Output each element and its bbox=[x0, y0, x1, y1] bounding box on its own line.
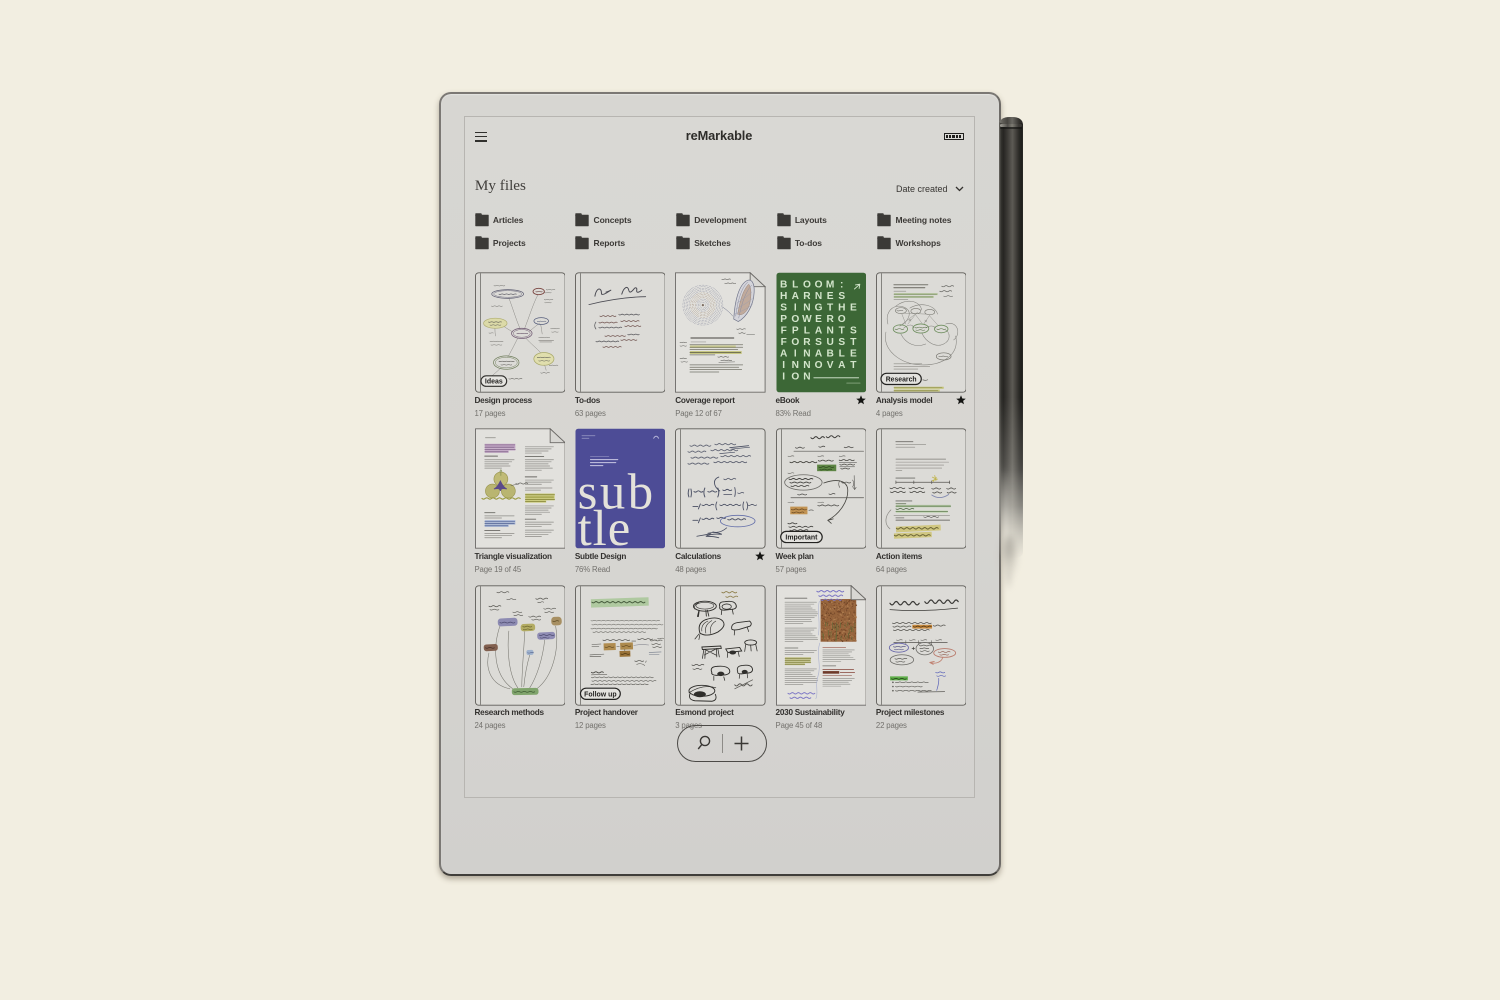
svg-text:Ideas: Ideas bbox=[484, 379, 502, 386]
svg-text:A: A bbox=[791, 291, 799, 302]
svg-text:E: E bbox=[815, 314, 822, 325]
svg-text:A: A bbox=[814, 326, 822, 337]
svg-text:A: A bbox=[780, 349, 788, 360]
svg-text:O: O bbox=[791, 314, 799, 325]
svg-text:tle: tle bbox=[577, 500, 631, 549]
svg-text:O: O bbox=[791, 337, 799, 348]
svg-text:Important: Important bbox=[785, 535, 818, 542]
svg-text:N: N bbox=[826, 326, 833, 337]
svg-text:L: L bbox=[803, 326, 809, 337]
svg-text:F: F bbox=[780, 326, 786, 337]
svg-text:A: A bbox=[838, 360, 846, 371]
svg-text:P: P bbox=[791, 326, 798, 337]
svg-text:S: S bbox=[815, 337, 822, 348]
svg-text:T: T bbox=[850, 337, 857, 348]
svg-text:S: S bbox=[780, 303, 787, 314]
svg-text:N: N bbox=[803, 303, 810, 314]
svg-text:R: R bbox=[803, 337, 811, 348]
svg-text:F: F bbox=[780, 337, 786, 348]
svg-text:O: O bbox=[791, 372, 799, 383]
svg-text:A: A bbox=[814, 349, 822, 360]
svg-text:V: V bbox=[826, 360, 833, 371]
svg-text:T: T bbox=[827, 303, 834, 314]
svg-text:N: N bbox=[803, 372, 810, 383]
svg-text:S: S bbox=[850, 326, 857, 337]
svg-text:M: M bbox=[825, 280, 833, 291]
svg-text:H: H bbox=[838, 303, 845, 314]
svg-text:B: B bbox=[780, 280, 787, 291]
svg-text:T: T bbox=[850, 360, 857, 371]
svg-text:R: R bbox=[826, 314, 834, 325]
svg-text:N: N bbox=[814, 291, 821, 302]
svg-text:O: O bbox=[803, 280, 811, 291]
svg-text:G: G bbox=[814, 303, 822, 314]
svg-text:R: R bbox=[803, 291, 811, 302]
svg-text:I: I bbox=[793, 349, 796, 360]
svg-text:P: P bbox=[780, 314, 787, 325]
svg-text:I: I bbox=[782, 372, 785, 383]
svg-text:O: O bbox=[814, 280, 822, 291]
svg-text:E: E bbox=[826, 291, 833, 302]
svg-text:S: S bbox=[838, 291, 845, 302]
svg-text:Follow up: Follow up bbox=[584, 691, 616, 698]
svg-text:T: T bbox=[838, 326, 845, 337]
svg-text:U: U bbox=[826, 337, 833, 348]
svg-text:N: N bbox=[803, 349, 810, 360]
svg-text:E: E bbox=[850, 303, 857, 314]
svg-text:H: H bbox=[780, 291, 787, 302]
svg-text:B: B bbox=[826, 349, 833, 360]
svg-text:L: L bbox=[838, 349, 844, 360]
svg-text:N: N bbox=[791, 360, 798, 371]
svg-text:O: O bbox=[837, 314, 845, 325]
svg-text:Research: Research bbox=[886, 377, 917, 384]
svg-text:O: O bbox=[814, 360, 822, 371]
svg-text:N: N bbox=[803, 360, 810, 371]
svg-text::: : bbox=[840, 280, 843, 291]
svg-text:I: I bbox=[793, 303, 796, 314]
svg-text:I: I bbox=[782, 360, 785, 371]
svg-text:W: W bbox=[802, 314, 812, 325]
svg-text:E: E bbox=[850, 349, 857, 360]
svg-text:L: L bbox=[792, 280, 798, 291]
svg-text:S: S bbox=[838, 337, 845, 348]
